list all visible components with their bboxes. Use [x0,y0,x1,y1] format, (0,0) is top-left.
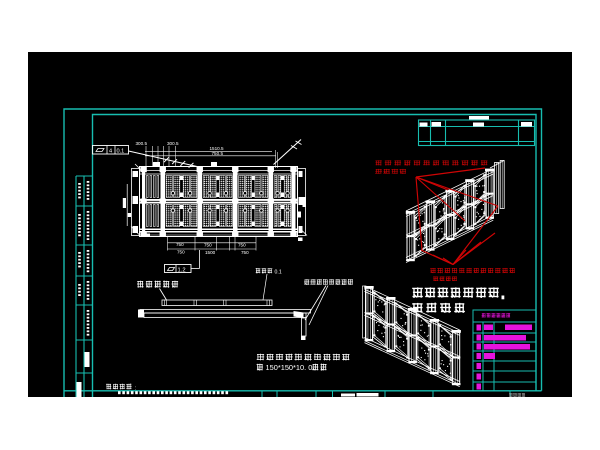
svg-text:750: 750 [176,242,184,247]
svg-text:750: 750 [238,243,246,248]
svg-text:0.1: 0.1 [117,149,125,155]
svg-text:0.1: 0.1 [275,269,282,275]
svg-text:1500: 1500 [205,250,216,255]
svg-text:750.5: 750.5 [212,151,224,156]
svg-text:150*150*10. 0: 150*150*10. 0 [266,363,313,372]
svg-text:750: 750 [204,243,212,248]
svg-text:750: 750 [241,250,249,255]
svg-text:1.2: 1.2 [178,268,186,274]
svg-text:4: 4 [109,149,112,155]
svg-text:300.5: 300.5 [167,141,179,146]
svg-text:300.5: 300.5 [136,141,148,146]
svg-text:750: 750 [177,250,185,255]
